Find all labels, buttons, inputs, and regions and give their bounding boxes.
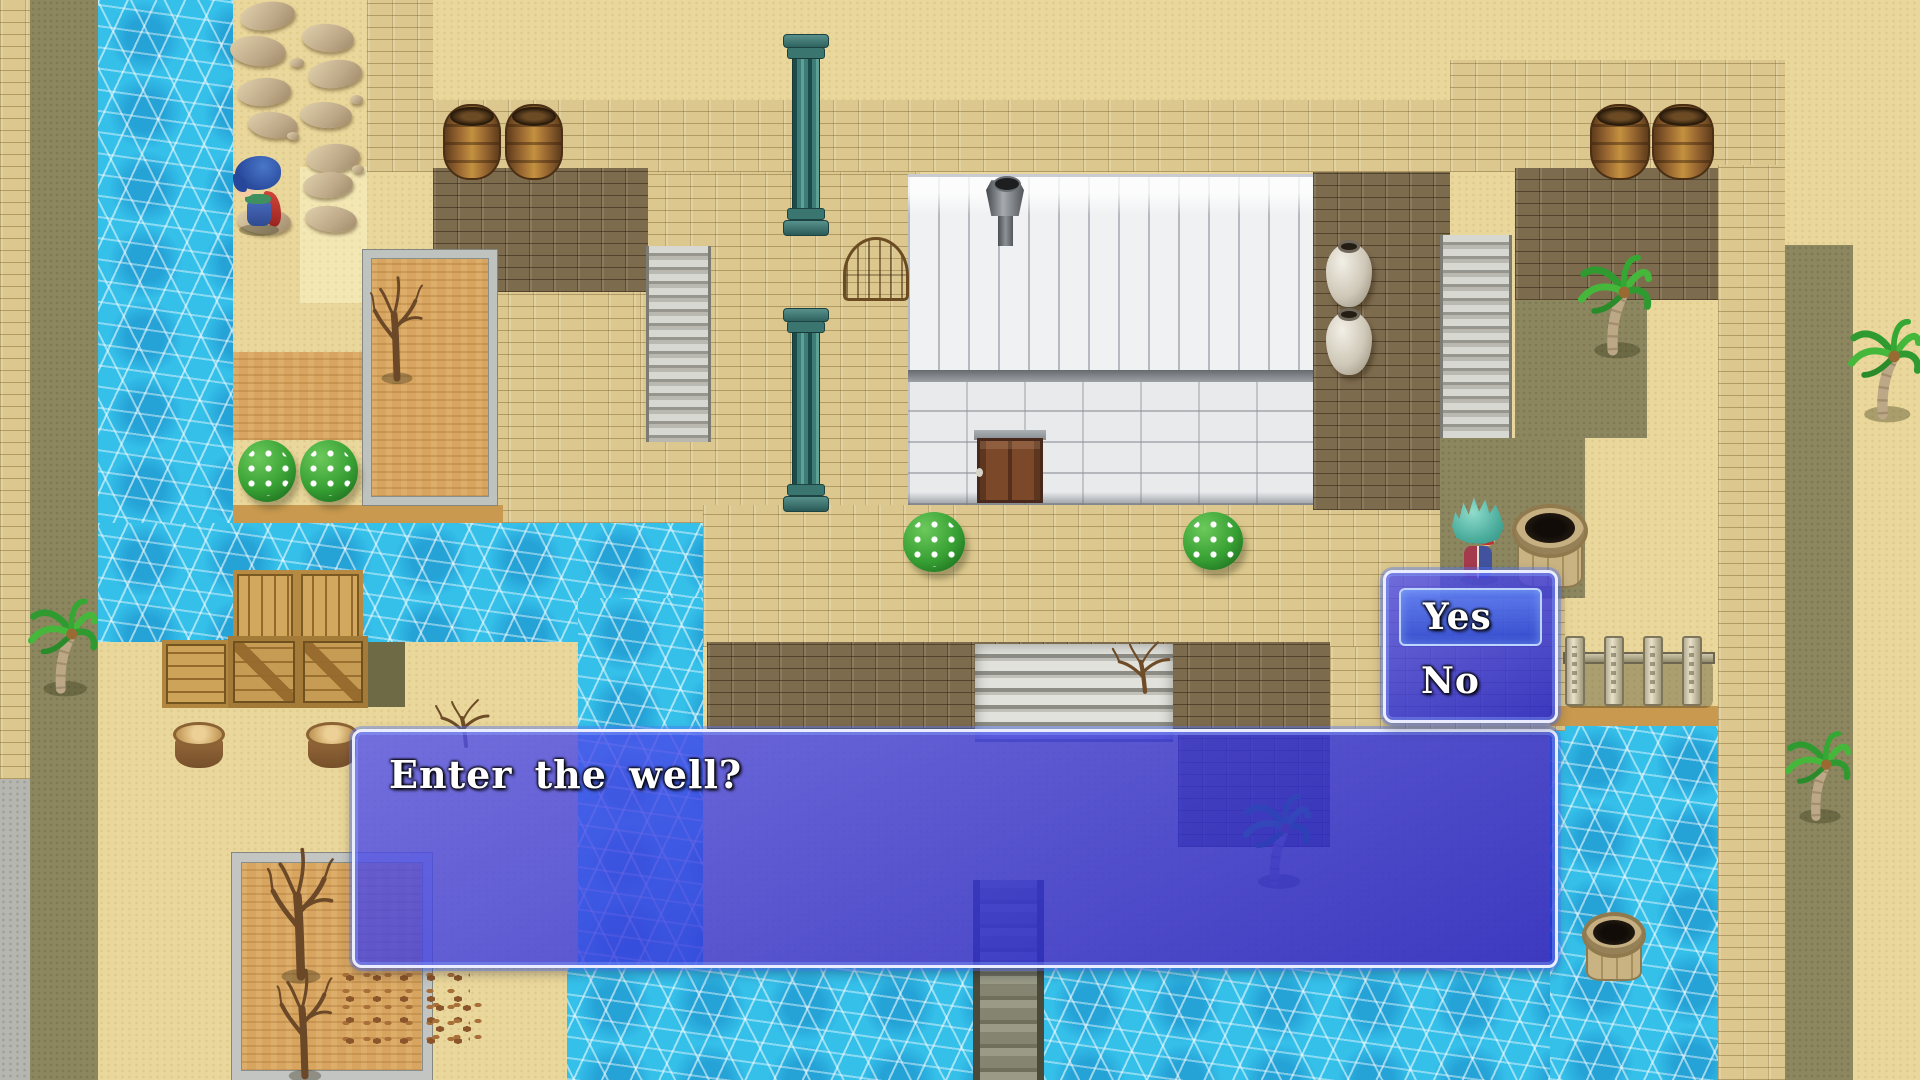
- door-knob-icon: [976, 468, 983, 477]
- door-panel: [977, 438, 1043, 503]
- pillar-shaft: [792, 58, 820, 210]
- waterline-strip-bushes: [233, 505, 503, 523]
- building-wall: [908, 382, 1313, 505]
- region-brick-column-right: [1718, 165, 1785, 1080]
- crate-shadow-patch: [363, 642, 405, 707]
- pillar-capital: [783, 308, 829, 322]
- region-brick-band-top: [433, 100, 1450, 172]
- fallen-leaves: [430, 1000, 490, 1045]
- choice-no-label: No: [1421, 660, 1480, 702]
- chimney-opening: [993, 176, 1021, 192]
- region-brick-column-topleft: [367, 0, 433, 172]
- flowering-bush: [300, 440, 358, 502]
- fence-post: [1643, 636, 1663, 706]
- pillar-base: [783, 220, 829, 236]
- pebble: [290, 58, 304, 67]
- choice-yes-label: Yes: [1423, 596, 1492, 638]
- staircase-left: [646, 246, 711, 442]
- palm-tree: [1785, 708, 1851, 842]
- flowering-bush: [1183, 512, 1243, 570]
- region-gray-road: [0, 779, 30, 1080]
- palm-tree: [28, 578, 98, 712]
- wooden-crate-small: [162, 640, 230, 708]
- barrel: [1590, 104, 1650, 180]
- fence-post: [1682, 636, 1702, 706]
- building-wall-shadow: [908, 492, 1313, 505]
- building-door[interactable]: [977, 430, 1043, 503]
- wooden-crate: [297, 570, 363, 642]
- well-hole: [1525, 513, 1575, 543]
- barrel: [443, 104, 501, 180]
- ceramic-jar: [1326, 243, 1372, 307]
- pillar-base-neck: [787, 484, 825, 496]
- palm-tree: [1848, 298, 1920, 438]
- building-roof-ledge: [908, 370, 1313, 382]
- fence: [1563, 636, 1715, 712]
- region-brick-left-edge: [0, 0, 30, 779]
- tree-stump: [175, 738, 223, 768]
- stone-pillar-south: [783, 308, 829, 512]
- region-water-right: [1550, 726, 1718, 1080]
- npc-hair: [1452, 494, 1504, 546]
- stone-well-south: [1582, 912, 1646, 982]
- game-viewport[interactable]: Enter the well? Yes No: [0, 0, 1920, 1080]
- white-building: [908, 174, 1313, 505]
- choice-window: Yes No: [1383, 570, 1558, 723]
- barrel: [1652, 104, 1714, 180]
- region-olive-column-right: [1785, 245, 1853, 1080]
- wooden-crate-braced: [298, 636, 368, 708]
- region-orange-sand-patch: [233, 352, 363, 440]
- dead-shrub: [1110, 636, 1180, 696]
- pillar-shaft: [792, 332, 820, 486]
- region-olive-strip-left: [30, 0, 98, 1080]
- chimney-icon: [984, 176, 1026, 246]
- wooden-crate-braced: [228, 636, 300, 708]
- flowering-bush: [903, 512, 965, 572]
- pebble: [350, 95, 363, 104]
- pillar-base-neck: [787, 208, 825, 220]
- ceramic-jar: [1326, 311, 1372, 375]
- fence-post: [1565, 636, 1585, 706]
- fence-post: [1604, 636, 1624, 706]
- choice-option-yes[interactable]: Yes: [1399, 588, 1542, 646]
- tree-stump: [308, 738, 356, 768]
- wooden-crate: [233, 570, 297, 642]
- stone-pillar-north: [783, 34, 829, 236]
- pillar-capital: [783, 34, 829, 48]
- flowering-bush: [238, 440, 296, 502]
- message-text: Enter the well?: [389, 752, 742, 797]
- pebble: [352, 165, 364, 173]
- pebble: [287, 132, 299, 140]
- dead-tree: [268, 962, 342, 1080]
- dead-tree: [366, 270, 428, 386]
- barrel: [505, 104, 563, 180]
- staircase-right: [1440, 235, 1512, 438]
- pillar-base: [783, 496, 829, 512]
- choice-option-no[interactable]: No: [1399, 652, 1542, 710]
- well-hole: [1593, 920, 1635, 945]
- message-window[interactable]: Enter the well?: [352, 729, 1558, 968]
- building-roof: [908, 174, 1313, 370]
- palm-tree: [1578, 232, 1652, 376]
- region-water-bottom: [567, 968, 1562, 1080]
- player-character[interactable]: [231, 156, 287, 236]
